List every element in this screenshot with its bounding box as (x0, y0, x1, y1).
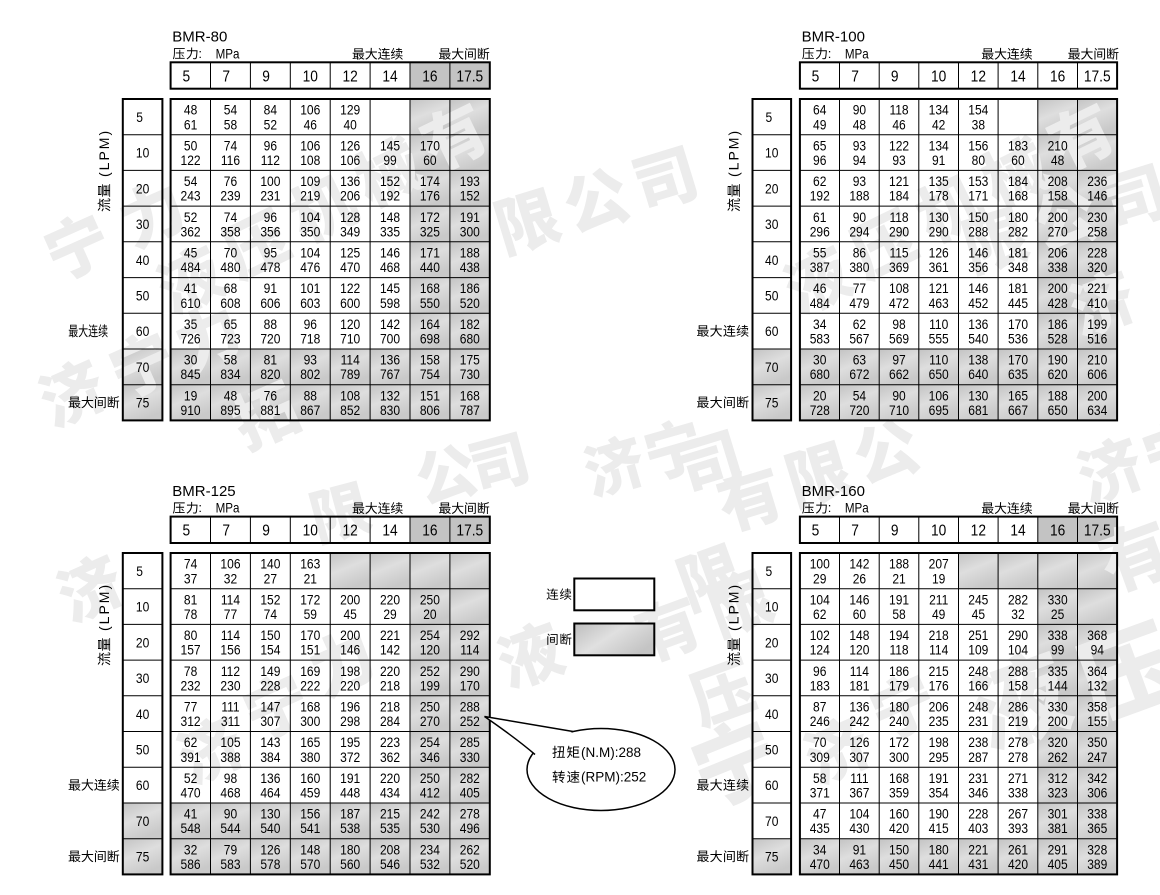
svg-text:58: 58 (224, 116, 237, 132)
svg-text:730: 730 (460, 366, 480, 382)
svg-text:158: 158 (1008, 678, 1028, 694)
svg-text:42: 42 (932, 116, 945, 132)
svg-text:142: 142 (380, 642, 400, 658)
svg-text:10: 10 (931, 522, 946, 540)
svg-text:176: 176 (420, 188, 440, 204)
svg-text:278: 278 (1008, 749, 1028, 765)
svg-text:5: 5 (182, 67, 190, 85)
svg-text:219: 219 (300, 188, 320, 204)
svg-text:170: 170 (460, 678, 480, 694)
svg-text:171: 171 (968, 188, 988, 204)
svg-text:(N.M):288: (N.M):288 (581, 745, 641, 760)
svg-text:802: 802 (300, 366, 320, 382)
svg-text:787: 787 (460, 402, 480, 418)
svg-text:403: 403 (968, 820, 988, 836)
svg-text:70: 70 (765, 813, 778, 829)
svg-text:BMR-125: BMR-125 (172, 483, 235, 500)
svg-text:12: 12 (971, 67, 986, 85)
svg-text:468: 468 (220, 785, 240, 801)
svg-text:359: 359 (889, 785, 909, 801)
svg-text:570: 570 (300, 856, 320, 872)
svg-text:356: 356 (260, 224, 280, 240)
svg-text:32: 32 (1011, 606, 1024, 622)
svg-text:152: 152 (460, 188, 480, 204)
svg-text:10: 10 (931, 67, 946, 85)
svg-text:820: 820 (260, 366, 280, 382)
svg-text:60: 60 (765, 323, 778, 339)
svg-text:MPa: MPa (845, 47, 869, 62)
svg-text:74: 74 (264, 606, 277, 622)
svg-text:586: 586 (181, 856, 201, 872)
svg-text:867: 867 (300, 402, 320, 418)
svg-text:284: 284 (380, 713, 400, 729)
svg-text:40: 40 (136, 252, 149, 268)
svg-text:10: 10 (765, 145, 778, 161)
svg-text:546: 546 (380, 856, 400, 872)
svg-text:50: 50 (136, 288, 149, 304)
svg-text:479: 479 (849, 295, 869, 311)
svg-text:681: 681 (968, 402, 988, 418)
svg-text:232: 232 (181, 678, 201, 694)
svg-text::: : (198, 46, 202, 61)
svg-text:538: 538 (340, 820, 360, 836)
svg-text:114: 114 (460, 642, 479, 658)
svg-text:16: 16 (422, 67, 437, 85)
svg-text:29: 29 (383, 606, 396, 622)
svg-text:362: 362 (181, 224, 201, 240)
svg-text:300: 300 (460, 224, 480, 240)
svg-text:662: 662 (889, 366, 909, 382)
svg-text:BMR-80: BMR-80 (172, 29, 227, 46)
svg-text::: : (828, 46, 832, 61)
svg-text:199: 199 (420, 678, 440, 694)
svg-text:21: 21 (304, 570, 317, 586)
svg-text:14: 14 (382, 522, 397, 540)
svg-text:7: 7 (222, 522, 230, 540)
svg-text:412: 412 (420, 785, 440, 801)
svg-text:168: 168 (1008, 188, 1028, 204)
svg-text:106: 106 (340, 152, 360, 168)
svg-text:560: 560 (340, 856, 360, 872)
svg-text:(LPM): (LPM) (96, 129, 112, 177)
svg-text:307: 307 (849, 749, 869, 765)
svg-text:634: 634 (1087, 402, 1107, 418)
svg-text:40: 40 (765, 252, 778, 268)
svg-text:46: 46 (892, 116, 905, 132)
svg-text:650: 650 (929, 366, 949, 382)
svg-text:17.5: 17.5 (456, 522, 483, 540)
svg-text:21: 21 (892, 570, 905, 586)
svg-text:60: 60 (136, 777, 149, 793)
svg-text:124: 124 (810, 642, 830, 658)
svg-text:600: 600 (340, 295, 360, 311)
svg-text:470: 470 (810, 856, 830, 872)
svg-text:5: 5 (182, 522, 190, 540)
svg-text:484: 484 (181, 259, 201, 275)
svg-text:247: 247 (1087, 749, 1107, 765)
svg-text:14: 14 (1010, 522, 1025, 540)
svg-text:60: 60 (136, 323, 149, 339)
svg-text:307: 307 (260, 713, 280, 729)
svg-text:59: 59 (304, 606, 317, 622)
svg-text:16: 16 (422, 522, 437, 540)
svg-text:480: 480 (220, 259, 240, 275)
svg-text:393: 393 (1008, 820, 1028, 836)
svg-text:420: 420 (1008, 856, 1028, 872)
svg-text:20: 20 (136, 181, 149, 197)
svg-text:120: 120 (849, 642, 869, 658)
svg-text:122: 122 (181, 152, 201, 168)
svg-text:806: 806 (420, 402, 440, 418)
svg-text:75: 75 (136, 849, 149, 865)
svg-text:258: 258 (1087, 224, 1107, 240)
svg-text:608: 608 (220, 295, 240, 311)
svg-text:16: 16 (1050, 67, 1065, 85)
svg-text:70: 70 (765, 359, 778, 375)
svg-text:188: 188 (849, 188, 869, 204)
svg-text:7: 7 (851, 522, 859, 540)
svg-text:680: 680 (810, 366, 830, 382)
svg-text:405: 405 (460, 785, 480, 801)
svg-text:62: 62 (813, 606, 826, 622)
svg-text:78: 78 (184, 606, 197, 622)
svg-text:536: 536 (1008, 331, 1028, 347)
svg-text:26: 26 (853, 570, 866, 586)
svg-text:540: 540 (260, 820, 280, 836)
svg-text:5: 5 (136, 563, 143, 579)
svg-text:60: 60 (853, 606, 866, 622)
svg-text:270: 270 (420, 713, 440, 729)
svg-text:218: 218 (380, 678, 400, 694)
svg-text:767: 767 (380, 366, 400, 382)
svg-text:49: 49 (813, 116, 826, 132)
svg-text:700: 700 (380, 331, 400, 347)
svg-text:30: 30 (765, 216, 778, 232)
svg-text:75: 75 (765, 849, 778, 865)
svg-text:50: 50 (136, 742, 149, 758)
svg-text:583: 583 (220, 856, 240, 872)
svg-text:12: 12 (971, 522, 986, 540)
svg-text:384: 384 (260, 749, 280, 765)
svg-text:181: 181 (849, 678, 869, 694)
svg-text:12: 12 (343, 67, 358, 85)
svg-text:178: 178 (929, 188, 949, 204)
svg-text:60: 60 (1011, 152, 1024, 168)
svg-text:179: 179 (889, 678, 909, 694)
svg-text:496: 496 (460, 820, 480, 836)
svg-text:25: 25 (1051, 606, 1064, 622)
svg-text:387: 387 (810, 259, 830, 275)
svg-text:246: 246 (810, 713, 830, 729)
svg-text:300: 300 (889, 749, 909, 765)
svg-text:452: 452 (968, 295, 988, 311)
svg-text:20: 20 (136, 635, 149, 651)
svg-text:45: 45 (343, 606, 356, 622)
svg-text::: : (198, 500, 202, 515)
svg-text:349: 349 (340, 224, 360, 240)
svg-text:10: 10 (136, 599, 149, 615)
svg-text:834: 834 (220, 366, 240, 382)
svg-text:228: 228 (260, 678, 280, 694)
svg-text:5: 5 (765, 563, 772, 579)
svg-text:60: 60 (423, 152, 436, 168)
svg-text:155: 155 (1087, 713, 1107, 729)
svg-text:369: 369 (889, 259, 909, 275)
svg-text:252: 252 (460, 713, 480, 729)
svg-text:388: 388 (220, 749, 240, 765)
svg-text:166: 166 (968, 678, 988, 694)
svg-text:158: 158 (1048, 188, 1068, 204)
svg-text:338: 338 (1008, 785, 1028, 801)
svg-text:298: 298 (340, 713, 360, 729)
svg-text:830: 830 (380, 402, 400, 418)
svg-text:9: 9 (262, 67, 270, 85)
svg-text:MPa: MPa (845, 501, 869, 516)
svg-text:754: 754 (420, 366, 440, 382)
svg-text:10: 10 (303, 67, 318, 85)
svg-text:541: 541 (300, 820, 320, 836)
svg-text:282: 282 (1008, 224, 1028, 240)
svg-text:183: 183 (810, 678, 830, 694)
svg-text:520: 520 (460, 295, 480, 311)
svg-text:367: 367 (849, 785, 869, 801)
svg-text:640: 640 (968, 366, 988, 382)
svg-text:620: 620 (1048, 366, 1068, 382)
svg-text:38: 38 (972, 116, 985, 132)
svg-text:320: 320 (1087, 259, 1107, 275)
svg-text:478: 478 (260, 259, 280, 275)
svg-text:356: 356 (968, 259, 988, 275)
svg-text:49: 49 (932, 606, 945, 622)
svg-text:50: 50 (765, 742, 778, 758)
svg-text:728: 728 (810, 402, 830, 418)
svg-text:380: 380 (849, 259, 869, 275)
svg-text:108: 108 (300, 152, 320, 168)
svg-text:555: 555 (929, 331, 949, 347)
svg-text:9: 9 (891, 522, 899, 540)
svg-text:450: 450 (889, 856, 909, 872)
svg-text:70: 70 (136, 813, 149, 829)
svg-text:235: 235 (929, 713, 949, 729)
svg-text:672: 672 (849, 366, 869, 382)
svg-text:365: 365 (1087, 820, 1107, 836)
svg-text::: : (828, 500, 832, 515)
svg-text:361: 361 (929, 259, 949, 275)
svg-text:528: 528 (1048, 331, 1068, 347)
svg-text:243: 243 (181, 188, 201, 204)
svg-text:895: 895 (220, 402, 240, 418)
svg-text:346: 346 (420, 749, 440, 765)
svg-text:(LPM): (LPM) (96, 583, 112, 631)
svg-text:472: 472 (889, 295, 909, 311)
svg-text:37: 37 (184, 570, 197, 586)
svg-text:720: 720 (260, 331, 280, 347)
svg-text:348: 348 (1008, 259, 1028, 275)
svg-text:239: 239 (220, 188, 240, 204)
svg-text:532: 532 (420, 856, 440, 872)
svg-text:330: 330 (460, 749, 480, 765)
svg-text:420: 420 (889, 820, 909, 836)
svg-text:118: 118 (889, 642, 908, 658)
svg-text:(RPM):252: (RPM):252 (581, 770, 646, 785)
svg-text:325: 325 (420, 224, 440, 240)
svg-text:290: 290 (889, 224, 909, 240)
svg-text:27: 27 (264, 570, 277, 586)
svg-text:146: 146 (340, 642, 360, 658)
svg-text:109: 109 (968, 642, 988, 658)
svg-text:46: 46 (304, 116, 317, 132)
svg-text:144: 144 (1048, 678, 1068, 694)
svg-text:431: 431 (968, 856, 988, 872)
svg-text:852: 852 (340, 402, 360, 418)
svg-text:548: 548 (181, 820, 201, 836)
svg-text:58: 58 (892, 606, 905, 622)
svg-text:17.5: 17.5 (456, 67, 483, 85)
svg-text:470: 470 (340, 259, 360, 275)
svg-text:463: 463 (929, 295, 949, 311)
svg-text:569: 569 (889, 331, 909, 347)
svg-text:845: 845 (181, 366, 201, 382)
svg-text:910: 910 (181, 402, 201, 418)
svg-text:603: 603 (300, 295, 320, 311)
svg-text:80: 80 (972, 152, 985, 168)
svg-text:75: 75 (136, 395, 149, 411)
svg-text:112: 112 (261, 152, 280, 168)
svg-text:40: 40 (343, 116, 356, 132)
svg-text:540: 540 (968, 331, 988, 347)
svg-text:350: 350 (300, 224, 320, 240)
svg-text:381: 381 (1048, 820, 1068, 836)
svg-text:242: 242 (849, 713, 869, 729)
svg-text:448: 448 (340, 785, 360, 801)
svg-text:14: 14 (1010, 67, 1025, 85)
svg-text:312: 312 (181, 713, 201, 729)
svg-text:48: 48 (853, 116, 866, 132)
svg-text:723: 723 (220, 331, 240, 347)
svg-text:606: 606 (1087, 366, 1107, 382)
svg-text:680: 680 (460, 331, 480, 347)
svg-text:200: 200 (1048, 713, 1068, 729)
svg-text:306: 306 (1087, 785, 1107, 801)
svg-text:650: 650 (1048, 402, 1068, 418)
svg-text:30: 30 (136, 216, 149, 232)
svg-text:710: 710 (889, 402, 909, 418)
svg-text:93: 93 (892, 152, 905, 168)
svg-text:270: 270 (1048, 224, 1068, 240)
svg-text:484: 484 (810, 295, 830, 311)
svg-text:338: 338 (1048, 259, 1068, 275)
svg-text:346: 346 (968, 785, 988, 801)
svg-text:BMR-160: BMR-160 (802, 483, 865, 500)
svg-text:10: 10 (136, 145, 149, 161)
svg-text:14: 14 (382, 67, 397, 85)
svg-text:146: 146 (1087, 188, 1107, 204)
svg-text:389: 389 (1087, 856, 1107, 872)
svg-text:12: 12 (343, 522, 358, 540)
svg-text:567: 567 (849, 331, 869, 347)
svg-text:698: 698 (420, 331, 440, 347)
svg-text:881: 881 (260, 402, 280, 418)
svg-text:720: 720 (849, 402, 869, 418)
svg-text:30: 30 (136, 670, 149, 686)
svg-text:MPa: MPa (216, 47, 240, 62)
svg-text:48: 48 (1051, 152, 1064, 168)
svg-text:438: 438 (460, 259, 480, 275)
svg-text:9: 9 (891, 67, 899, 85)
svg-text:530: 530 (420, 820, 440, 836)
svg-text:219: 219 (1008, 713, 1028, 729)
svg-text:362: 362 (380, 749, 400, 765)
svg-text:300: 300 (300, 713, 320, 729)
svg-text:99: 99 (1051, 642, 1064, 658)
svg-text:61: 61 (184, 116, 197, 132)
svg-text:463: 463 (849, 856, 869, 872)
svg-text:(LPM): (LPM) (726, 583, 742, 631)
svg-text:151: 151 (300, 642, 320, 658)
svg-text:583: 583 (810, 331, 830, 347)
svg-text:91: 91 (932, 152, 945, 168)
svg-text:294: 294 (849, 224, 869, 240)
svg-text:430: 430 (849, 820, 869, 836)
svg-text:99: 99 (383, 152, 396, 168)
svg-text:635: 635 (1008, 366, 1028, 382)
svg-text:323: 323 (1048, 785, 1068, 801)
svg-text:19: 19 (932, 570, 945, 586)
svg-text:710: 710 (340, 331, 360, 347)
svg-text:176: 176 (929, 678, 949, 694)
svg-text:726: 726 (181, 331, 201, 347)
svg-text:184: 184 (889, 188, 909, 204)
svg-text:296: 296 (810, 224, 830, 240)
svg-text:434: 434 (380, 785, 400, 801)
svg-text:287: 287 (968, 749, 988, 765)
svg-text:295: 295 (929, 749, 949, 765)
svg-text:405: 405 (1048, 856, 1068, 872)
svg-text:40: 40 (136, 706, 149, 722)
svg-text:464: 464 (260, 785, 280, 801)
svg-text:MPa: MPa (216, 501, 240, 516)
svg-text:30: 30 (765, 670, 778, 686)
svg-text:610: 610 (181, 295, 201, 311)
svg-text:606: 606 (260, 295, 280, 311)
svg-text:220: 220 (340, 678, 360, 694)
svg-text:231: 231 (260, 188, 280, 204)
svg-text:192: 192 (380, 188, 400, 204)
svg-text:10: 10 (303, 522, 318, 540)
svg-text:667: 667 (1008, 402, 1028, 418)
svg-text:50: 50 (765, 288, 778, 304)
svg-text:77: 77 (224, 606, 237, 622)
svg-text:7: 7 (851, 67, 859, 85)
svg-text:468: 468 (380, 259, 400, 275)
svg-text:20: 20 (423, 606, 436, 622)
svg-text:290: 290 (929, 224, 949, 240)
svg-text:459: 459 (300, 785, 320, 801)
svg-text:20: 20 (765, 635, 778, 651)
svg-text:BMR-100: BMR-100 (802, 29, 865, 46)
svg-text:5: 5 (136, 109, 143, 125)
svg-text:10: 10 (765, 599, 778, 615)
svg-text:20: 20 (765, 181, 778, 197)
svg-text:535: 535 (380, 820, 400, 836)
svg-text:231: 231 (968, 713, 988, 729)
svg-text:104: 104 (1008, 642, 1028, 658)
svg-text:7: 7 (222, 67, 230, 85)
svg-text:206: 206 (340, 188, 360, 204)
svg-text:154: 154 (260, 642, 280, 658)
svg-text:114: 114 (929, 642, 948, 658)
svg-text:157: 157 (181, 642, 201, 658)
